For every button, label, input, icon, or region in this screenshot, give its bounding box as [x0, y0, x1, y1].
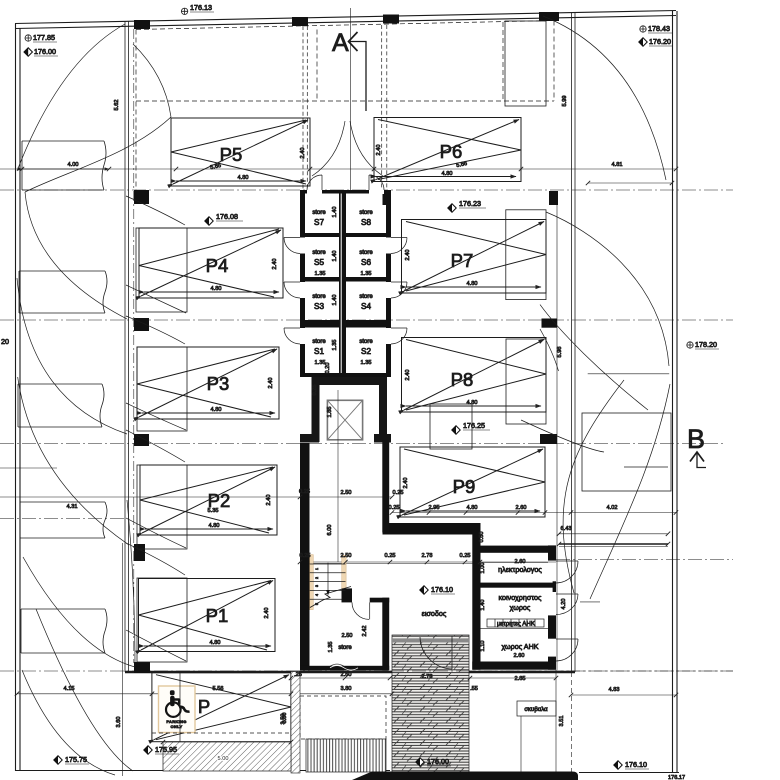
svg-text:177.85: 177.85: [33, 33, 55, 42]
svg-text:2.40: 2.40: [376, 145, 382, 156]
svg-text:5.35: 5.35: [208, 508, 219, 514]
svg-text:4: 4: [315, 594, 319, 596]
svg-text:2.40: 2.40: [405, 250, 411, 261]
svg-text:0.25: 0.25: [300, 553, 311, 559]
svg-text:1.35: 1.35: [332, 340, 338, 351]
svg-text:0.50: 0.50: [479, 532, 485, 543]
svg-text:A: A: [332, 29, 349, 57]
svg-text:S7: S7: [314, 218, 324, 227]
svg-text:2.85: 2.85: [515, 676, 526, 682]
svg-text:3.51: 3.51: [559, 716, 565, 727]
svg-text:1.00: 1.00: [480, 563, 486, 574]
svg-text:176.23: 176.23: [459, 199, 481, 208]
svg-text:0.20: 0.20: [325, 363, 331, 374]
svg-text:4.80: 4.80: [467, 505, 478, 511]
svg-text:1.35: 1.35: [361, 271, 372, 277]
svg-text:store: store: [359, 294, 373, 300]
svg-text:5.00: 5.00: [218, 756, 229, 762]
svg-text:2.40: 2.40: [403, 478, 409, 489]
svg-text:2.40: 2.40: [264, 608, 270, 619]
svg-text:178.43: 178.43: [648, 24, 670, 33]
svg-text:1.40: 1.40: [332, 295, 338, 306]
svg-text:S8: S8: [361, 218, 371, 227]
svg-text:2.78: 2.78: [422, 674, 433, 680]
svg-text:χωρος: χωρος: [510, 603, 531, 612]
svg-text:P6: P6: [440, 141, 463, 162]
svg-text:S2: S2: [361, 347, 371, 356]
svg-text:2.95: 2.95: [429, 505, 440, 511]
svg-text:P5: P5: [220, 144, 243, 165]
svg-text:3.50: 3.50: [281, 714, 287, 725]
svg-text:176.20: 176.20: [649, 37, 671, 46]
svg-text:1.40: 1.40: [480, 600, 486, 611]
svg-text:2.78: 2.78: [422, 553, 433, 559]
svg-text:2.40: 2.40: [272, 259, 278, 270]
svg-text:4.80: 4.80: [211, 407, 222, 413]
svg-text:.55: .55: [470, 686, 478, 692]
svg-text:176.10: 176.10: [625, 760, 647, 769]
svg-text:4.80: 4.80: [238, 175, 249, 181]
svg-text:0.25: 0.25: [385, 553, 396, 559]
svg-text:5.56: 5.56: [213, 686, 224, 692]
svg-text:176.17: 176.17: [668, 775, 685, 780]
svg-text:3.80: 3.80: [341, 686, 352, 692]
svg-text:store: store: [359, 210, 373, 216]
svg-text:S3: S3: [314, 302, 324, 311]
svg-text:.25: .25: [294, 672, 302, 678]
svg-text:5.98: 5.98: [557, 347, 563, 358]
svg-text:1.85: 1.85: [327, 407, 333, 418]
svg-text:S5: S5: [314, 258, 324, 267]
svg-text:P8: P8: [451, 369, 474, 390]
svg-text:S6: S6: [361, 258, 371, 267]
svg-text:P: P: [198, 696, 210, 717]
svg-text:1.40: 1.40: [332, 251, 338, 262]
svg-text:2.42: 2.42: [362, 626, 368, 637]
svg-text:P4: P4: [206, 255, 229, 276]
svg-text:εισοδος: εισοδος: [422, 609, 447, 618]
svg-text:P9: P9: [453, 476, 476, 497]
svg-text:5.99: 5.99: [562, 96, 568, 107]
svg-text:2.60: 2.60: [516, 505, 527, 511]
svg-text:0.25: 0.25: [312, 385, 318, 396]
svg-text:176.13: 176.13: [190, 3, 212, 12]
svg-text:5.62: 5.62: [114, 100, 120, 111]
svg-text:0.25: 0.25: [393, 490, 404, 496]
svg-text:1: 1: [315, 568, 319, 570]
svg-text:4.15: 4.15: [64, 686, 75, 692]
svg-text:store: store: [312, 250, 326, 256]
svg-text:2: 2: [315, 577, 319, 579]
svg-text:175.95: 175.95: [155, 745, 177, 754]
svg-text:176.10: 176.10: [431, 585, 453, 594]
svg-text:6.00: 6.00: [327, 525, 333, 536]
svg-text:B: B: [687, 424, 705, 454]
svg-text:2.40: 2.40: [300, 148, 306, 159]
svg-text:P7: P7: [451, 250, 474, 271]
svg-text:2.50: 2.50: [342, 633, 353, 639]
svg-text:2.50: 2.50: [341, 672, 352, 678]
svg-text:4.80: 4.80: [210, 640, 221, 646]
svg-text:2.40: 2.40: [266, 495, 272, 506]
svg-text:0.25: 0.25: [460, 553, 471, 559]
svg-text:σκυβαλα: σκυβαλα: [524, 707, 548, 713]
svg-text:4.80: 4.80: [442, 171, 453, 177]
svg-text:κοινοχρηστος: κοινοχρηστος: [499, 593, 543, 602]
svg-text:4.80: 4.80: [209, 523, 220, 529]
svg-text:3.60: 3.60: [116, 717, 122, 728]
svg-text:4.02: 4.02: [607, 505, 618, 511]
svg-text:0.25: 0.25: [299, 489, 310, 495]
svg-text:4.31: 4.31: [67, 504, 78, 510]
svg-text:1.35: 1.35: [361, 360, 372, 366]
svg-text:ηλεκτρολογος: ηλεκτρολογος: [498, 565, 542, 574]
svg-text:1.10: 1.10: [480, 641, 486, 652]
svg-text:S4: S4: [361, 302, 371, 311]
svg-text:μετρητες ΑΗΚ: μετρητες ΑΗΚ: [497, 621, 536, 628]
svg-text:2.50: 2.50: [341, 490, 352, 496]
svg-text:2.60: 2.60: [515, 559, 526, 565]
svg-text:ONLY: ONLY: [171, 724, 183, 729]
svg-text:store: store: [312, 339, 326, 345]
svg-text:175.75: 175.75: [65, 755, 87, 764]
svg-text:3: 3: [315, 585, 319, 587]
svg-text:1.40: 1.40: [332, 207, 338, 218]
svg-text:1.35: 1.35: [328, 642, 334, 653]
svg-text:store: store: [312, 210, 326, 216]
svg-text:χωρος ΑΗΚ: χωρος ΑΗΚ: [501, 642, 538, 651]
svg-text:P1: P1: [206, 605, 229, 626]
svg-text:2.40: 2.40: [268, 378, 274, 389]
svg-text:store: store: [338, 645, 352, 651]
svg-text:176.00: 176.00: [34, 47, 56, 56]
svg-text:4.20: 4.20: [561, 599, 567, 610]
svg-text:2.60: 2.60: [514, 653, 525, 659]
svg-text:store: store: [359, 250, 373, 256]
svg-text:store: store: [312, 294, 326, 300]
svg-text:P3: P3: [207, 373, 230, 394]
svg-text:176.08: 176.08: [216, 212, 238, 221]
svg-text:178.20: 178.20: [695, 340, 717, 349]
svg-text:176.25: 176.25: [463, 421, 485, 430]
svg-text:S1: S1: [314, 347, 324, 356]
svg-text:4.81: 4.81: [612, 162, 623, 168]
svg-text:1.35: 1.35: [315, 271, 326, 277]
svg-text:4.80: 4.80: [467, 281, 478, 287]
svg-text:2.50: 2.50: [341, 553, 352, 559]
svg-text:20: 20: [1, 337, 9, 346]
svg-text:2.40: 2.40: [405, 370, 411, 381]
svg-text:4.80: 4.80: [211, 286, 222, 292]
svg-text:176.00: 176.00: [427, 757, 449, 766]
svg-text:6.43: 6.43: [561, 526, 572, 532]
svg-text:store: store: [359, 339, 373, 345]
svg-text:1.35: 1.35: [315, 360, 326, 366]
svg-text:4.83: 4.83: [609, 687, 620, 693]
svg-text:4.00: 4.00: [68, 162, 79, 168]
